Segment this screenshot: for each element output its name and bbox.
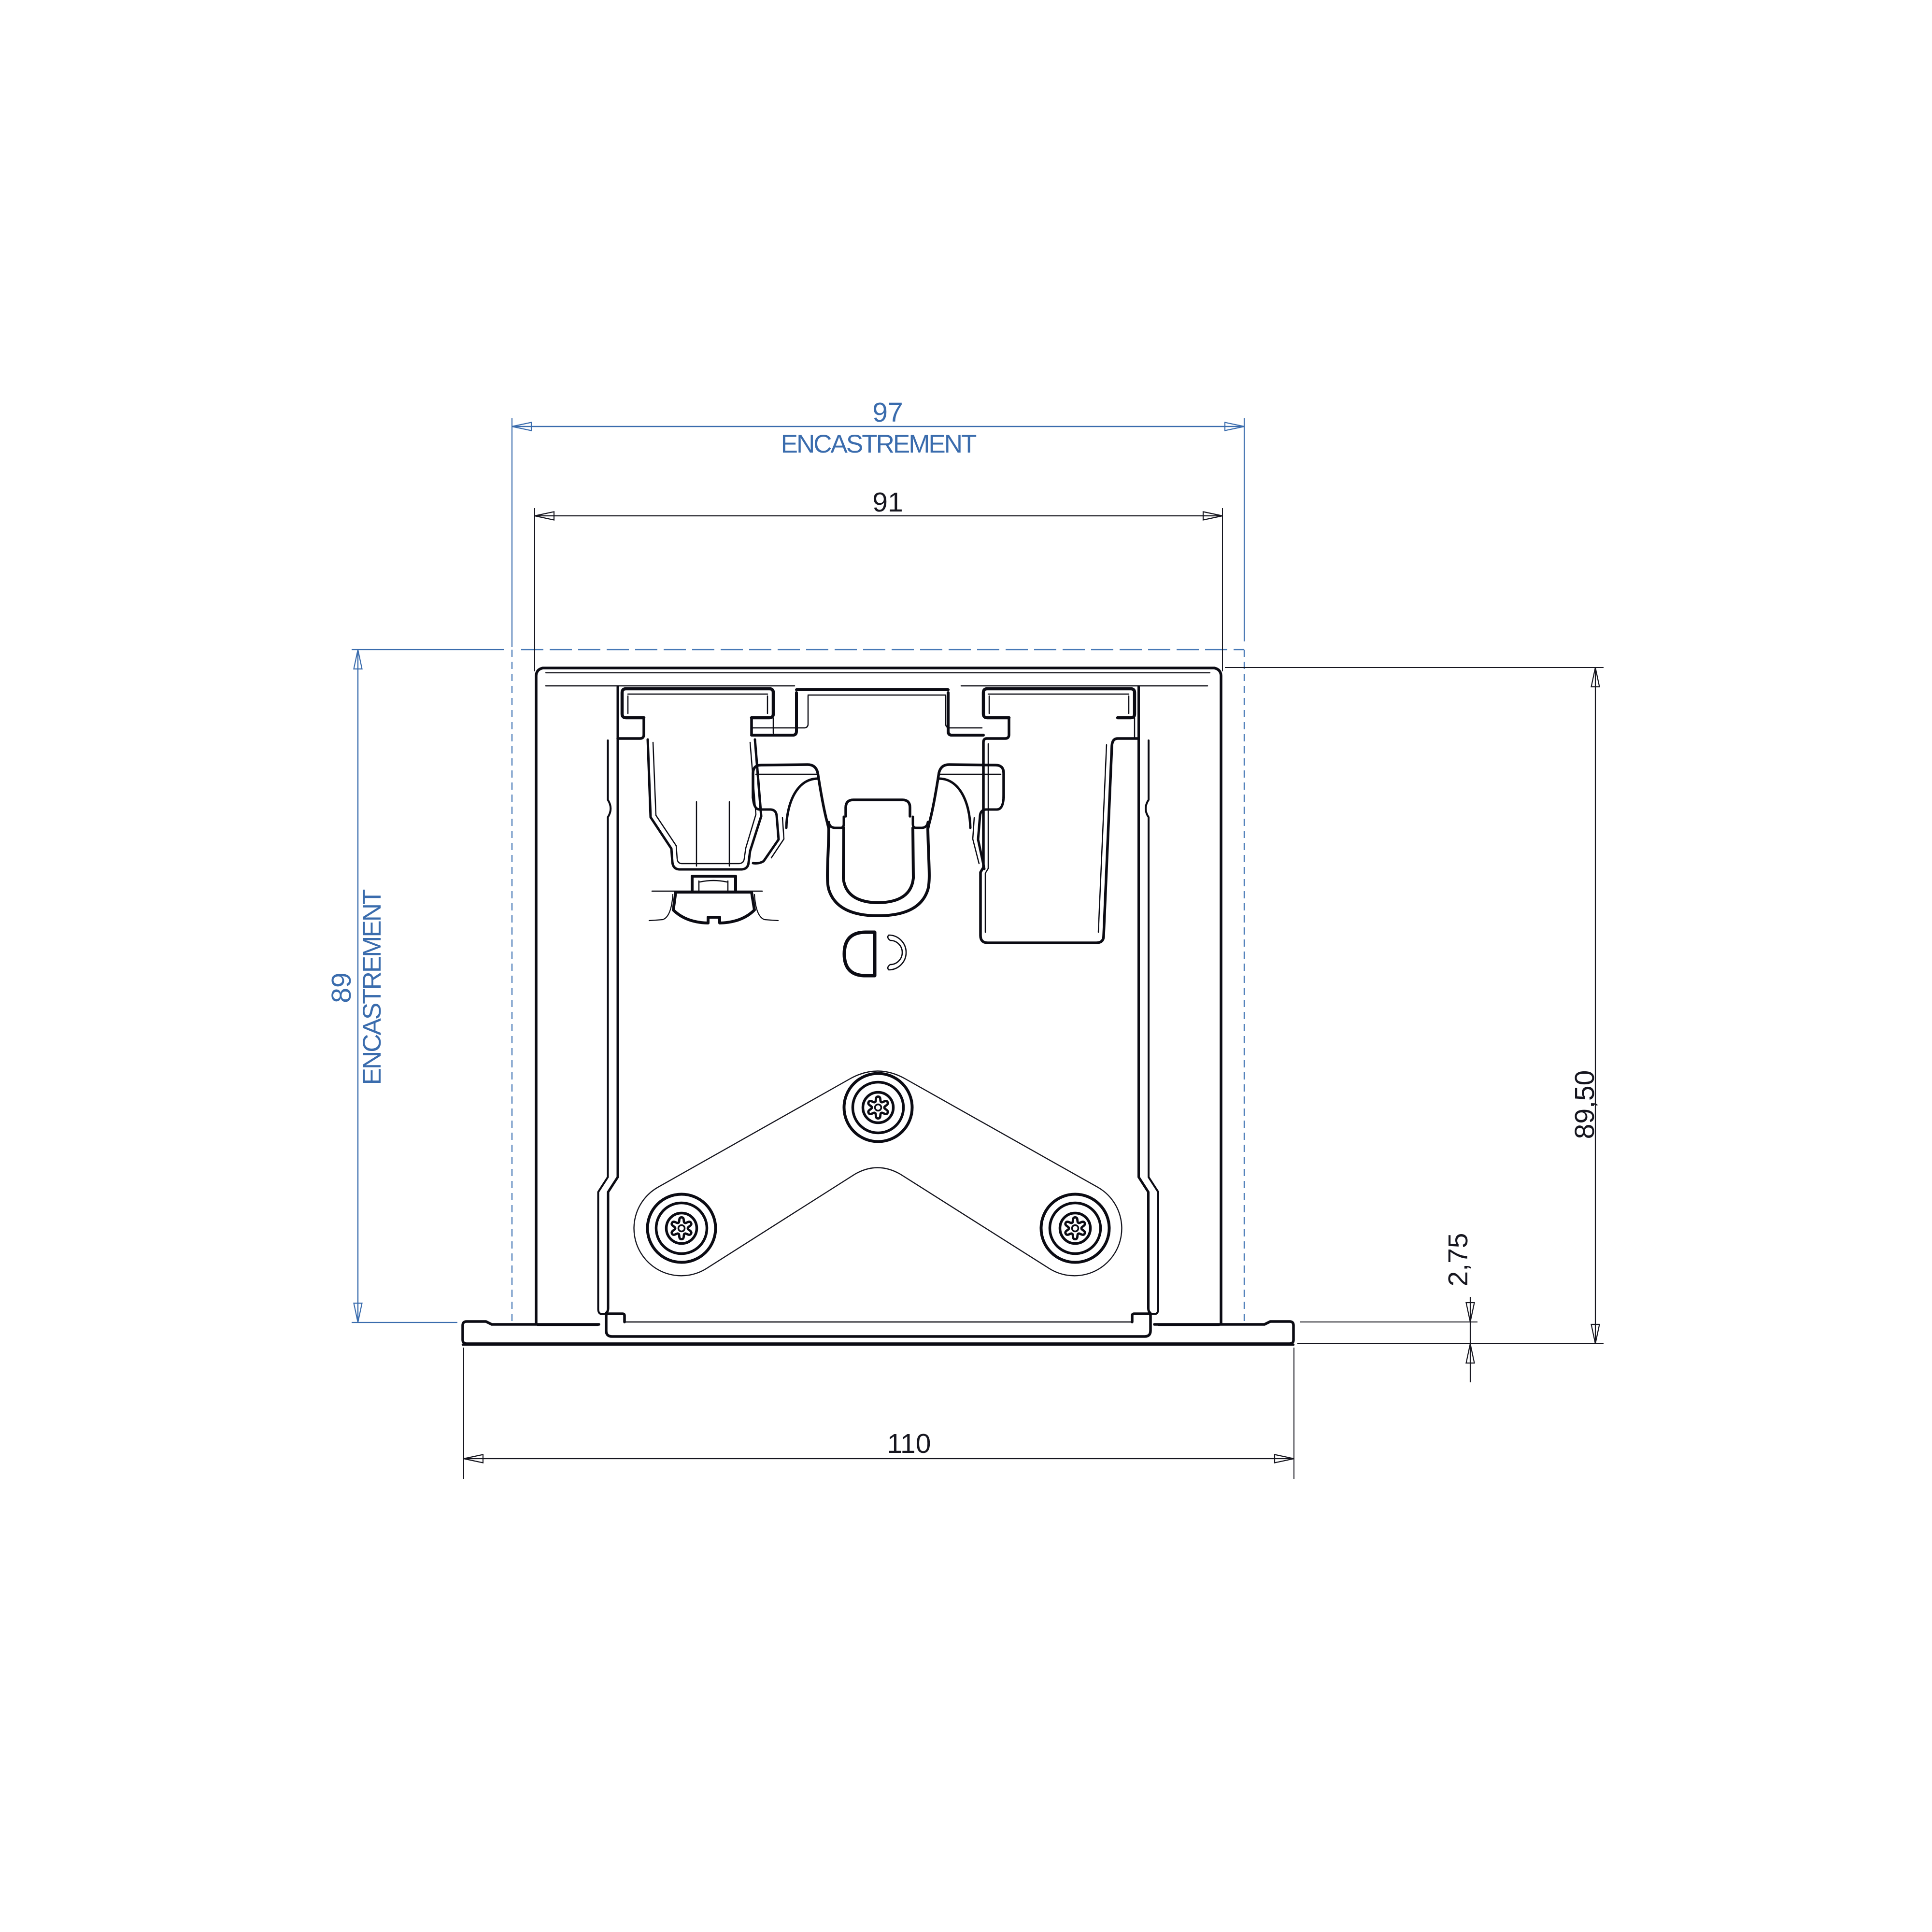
svg-text:ENCASTREMENT: ENCASTREMENT <box>781 430 977 458</box>
svg-text:2,75: 2,75 <box>1443 1233 1474 1287</box>
svg-text:89,50: 89,50 <box>1569 1070 1600 1139</box>
svg-text:91: 91 <box>872 487 903 518</box>
svg-text:110: 110 <box>887 1428 931 1459</box>
svg-text:97: 97 <box>872 397 903 428</box>
